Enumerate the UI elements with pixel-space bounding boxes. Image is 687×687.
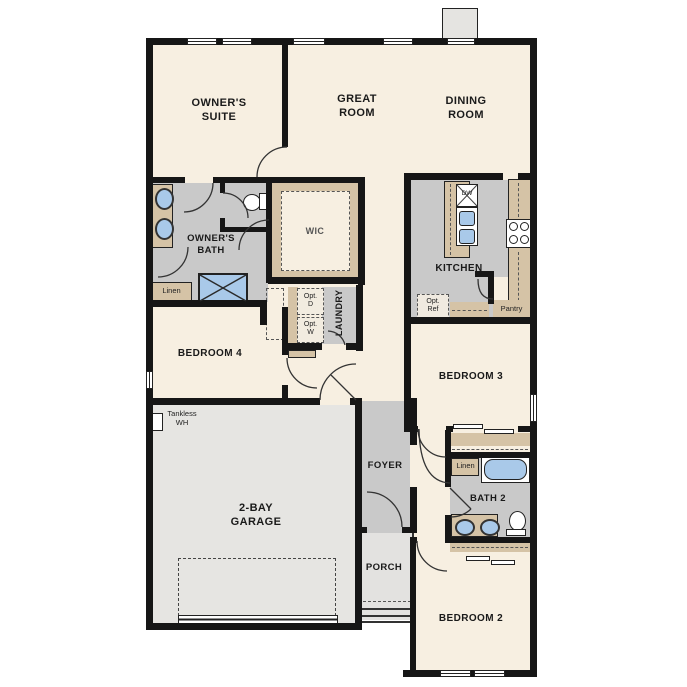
wall-bed4-right-b	[282, 385, 288, 400]
wall-foyer-right-a	[410, 398, 417, 445]
wall-bath2-left-a	[445, 430, 451, 487]
wall-nook-stub	[260, 300, 267, 325]
label-linen-owners: Linen	[152, 287, 191, 296]
porch-step-3	[357, 621, 413, 623]
label-bath2: BATH 2	[460, 493, 516, 505]
label-foyer: FOYER	[362, 460, 408, 472]
porch-dashed-edge	[363, 601, 411, 602]
owners-sink-1	[155, 188, 174, 210]
counter-dash-1	[518, 183, 519, 217]
wall-garage-bottom	[146, 623, 362, 630]
window-bedroom2-2	[474, 670, 505, 677]
bed3-closet-shelf	[450, 433, 530, 446]
label-garage: 2-BAY GARAGE	[206, 501, 306, 530]
wall-right	[530, 38, 537, 677]
floor-plan: OWNER'S SUITE GREAT ROOM DINING ROOM OWN…	[0, 0, 687, 687]
bed2-bypass-door-2	[491, 560, 515, 565]
bath2-sink-1	[455, 519, 475, 536]
chimney	[442, 8, 478, 41]
garage-door-clearance	[178, 558, 336, 616]
wall-bath2-top	[445, 452, 530, 458]
wall-frontdoor-b	[402, 527, 417, 533]
label-kitchen: KITCHEN	[419, 262, 499, 275]
label-bedroom2: BEDROOM 2	[411, 612, 531, 625]
label-pantry: Pantry	[493, 305, 530, 314]
label-linen-hall: Linen	[452, 462, 479, 471]
wall-laundry-bottom-b	[346, 343, 362, 350]
window-bedroom4	[146, 371, 153, 389]
porch-step-1	[357, 608, 413, 610]
porch-step-2	[357, 615, 413, 617]
label-dishwasher: DW	[456, 190, 478, 197]
room-porch	[362, 533, 413, 620]
water-heater-box	[152, 413, 163, 431]
wall-bed2-left	[410, 540, 416, 677]
bath2-sink-2	[480, 519, 500, 536]
wall-frontdoor-a	[355, 527, 367, 533]
shower	[198, 273, 248, 303]
burner-2	[520, 222, 529, 231]
wall-wc-bottom	[220, 227, 271, 232]
bed2-closet-rod	[452, 547, 528, 548]
label-bedroom3: BEDROOM 3	[411, 370, 531, 383]
wall-suite-great	[282, 38, 288, 147]
wall-pantry-stub-v	[488, 271, 494, 304]
wall-bed3-bottom-c	[518, 426, 530, 432]
wall-kitchen-top-a	[404, 173, 503, 180]
label-wic: WIC	[295, 226, 335, 238]
label-bedroom4: BEDROOM 4	[150, 347, 270, 360]
bath2-toilet-bowl	[509, 511, 526, 531]
burner-3	[509, 235, 518, 244]
wall-garage-right	[355, 398, 362, 630]
bed3-closet-rod	[452, 449, 528, 450]
wall-wc-left-a	[220, 177, 225, 193]
sink-basin-1	[459, 211, 475, 226]
burner-1	[509, 222, 518, 231]
wall-left	[146, 38, 153, 630]
island-overhang-dash	[450, 184, 451, 255]
label-dining-room: DINING ROOM	[421, 94, 511, 123]
burner-4	[520, 235, 529, 244]
window-suite-1	[187, 38, 217, 45]
bed3-bypass-door-2	[484, 429, 514, 434]
wall-suite-bath-a	[146, 177, 185, 183]
window-dining-1	[383, 38, 413, 45]
wall-garage-top-a	[146, 398, 320, 405]
window-great-room	[293, 38, 325, 45]
wall-kitchen-left	[404, 173, 411, 324]
wall-kitchen-bottom	[404, 317, 537, 324]
hall-cabinet	[288, 350, 316, 358]
sink-basin-2	[459, 229, 475, 244]
bed3-bypass-door-1	[453, 424, 483, 429]
window-suite-2	[222, 38, 252, 45]
window-dining-2	[447, 38, 475, 45]
wall-bath-bed4	[146, 300, 264, 307]
label-owners-bath: OWNER'S BATH	[171, 233, 251, 258]
counter-dash-2	[518, 252, 519, 306]
wall-kitchen-top-b	[518, 173, 530, 180]
bath2-toilet-tank	[506, 529, 526, 536]
wall-laundry-right	[356, 285, 363, 351]
label-laundry: LAUNDRY	[334, 283, 346, 343]
window-bedroom3	[530, 394, 537, 422]
wall-suite-bath-b	[213, 177, 365, 183]
wall-bath2-bottom-b	[447, 537, 530, 543]
label-opt-ref: Opt. Ref	[417, 298, 449, 314]
bathtub	[484, 459, 527, 480]
wall-laundry-bottom-a	[287, 343, 322, 350]
counter-bottom-dash	[452, 310, 487, 311]
label-porch: PORCH	[361, 562, 407, 574]
label-opt-dryer: Opt. D	[297, 293, 324, 309]
wall-wic-bottom	[268, 277, 363, 284]
label-owners-suite: OWNER'S SUITE	[169, 96, 269, 125]
bed2-bypass-door-1	[466, 556, 490, 561]
label-opt-washer: Opt. W	[297, 321, 324, 337]
window-bedroom2-1	[440, 670, 471, 677]
label-great-room: GREAT ROOM	[312, 92, 402, 121]
wall-wic-right	[358, 177, 365, 285]
wall-wic-left	[266, 177, 272, 283]
label-tankless-wh: Tankless WH	[164, 410, 200, 427]
